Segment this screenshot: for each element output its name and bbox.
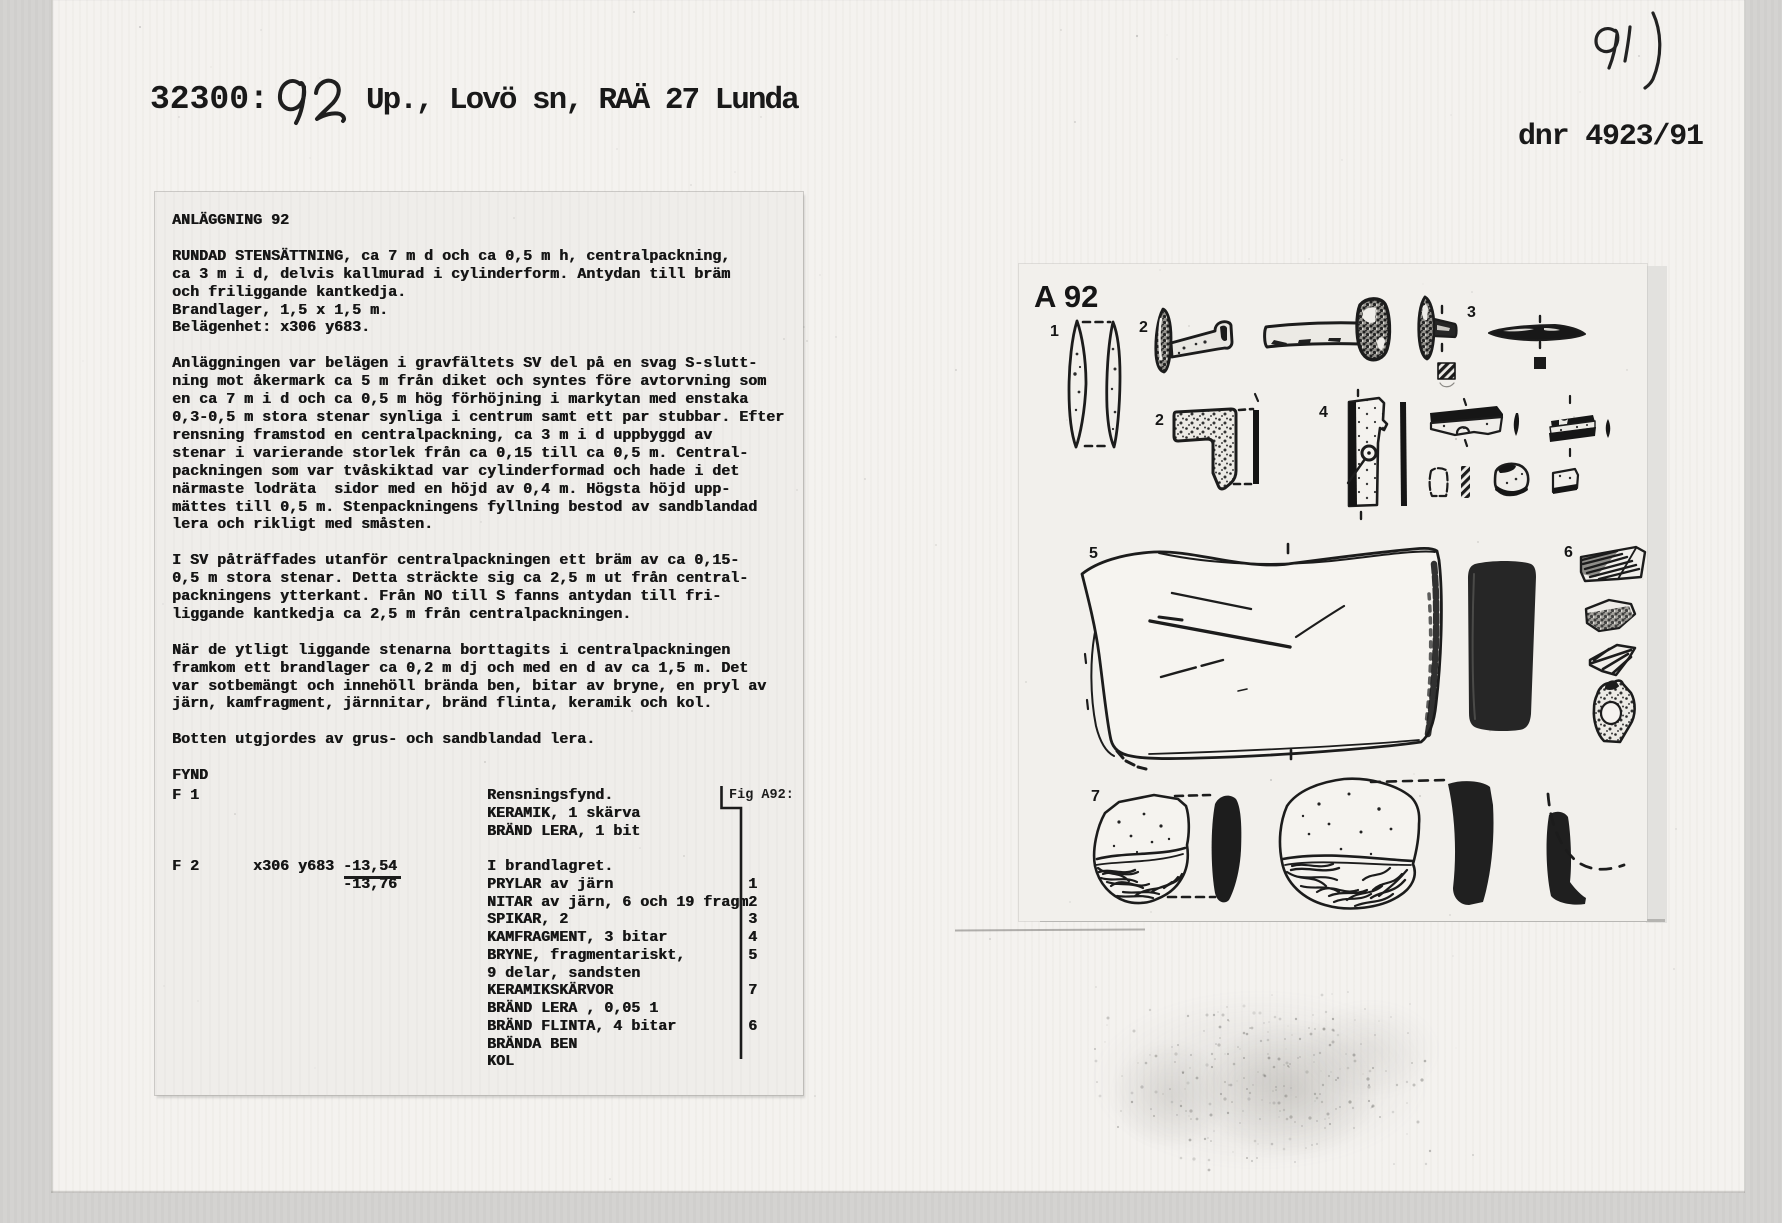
svg-text:4: 4 — [1319, 404, 1328, 421]
svg-text:6: 6 — [1564, 544, 1573, 561]
svg-text:2: 2 — [1155, 412, 1164, 429]
svg-text:2: 2 — [1139, 319, 1148, 336]
svg-text:1: 1 — [1050, 323, 1059, 340]
svg-text:A 92: A 92 — [1034, 279, 1098, 314]
svg-text:3: 3 — [1467, 304, 1476, 321]
svg-text:5: 5 — [1089, 545, 1098, 562]
svg-text:7: 7 — [1091, 788, 1100, 805]
